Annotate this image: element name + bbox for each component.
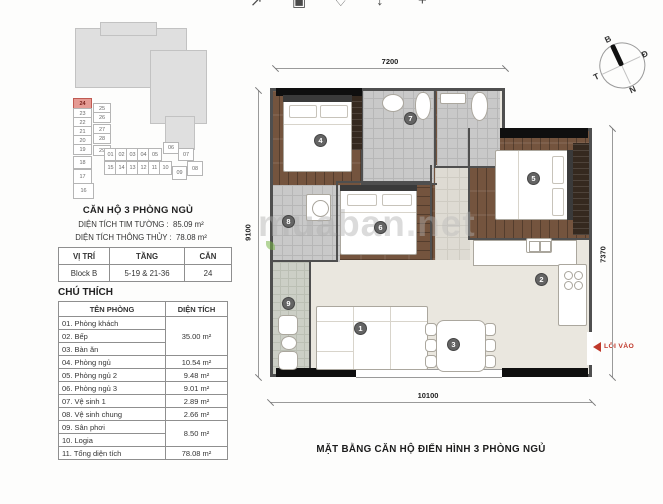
unit-cell[interactable]: 19 — [73, 144, 92, 155]
legend-room: 07. Vệ sinh 1 — [59, 395, 166, 408]
legend-room: 02. Bếp — [59, 330, 166, 343]
toilet-icon — [415, 92, 431, 120]
entry-arrow-icon — [593, 342, 601, 352]
plan-caption: MẶT BẰNG CĂN HỘ ĐIỂN HÌNH 3 PHÒNG NGỦ — [258, 444, 604, 455]
kitchen-counter-icon — [558, 264, 587, 326]
chair-icon — [278, 351, 298, 370]
floorplan-page: ↗ ▣ ♡ ↓ + 24 23 22 21 20 19 18 17 16 25 … — [0, 0, 663, 504]
sofa-icon — [316, 306, 428, 370]
col-floor: TẦNG — [110, 248, 185, 265]
unit-cell[interactable]: 10 — [159, 161, 172, 175]
unit-title: CĂN HỘ 3 PHÒNG NGỦ — [55, 205, 221, 216]
area-net-label: DIỆN TÍCH THÔNG THỦY : — [75, 233, 171, 242]
kitchen-sink-icon — [526, 238, 552, 253]
key-plan: 24 23 22 21 20 19 18 17 16 25 26 27 28 2… — [45, 20, 240, 202]
legend-room: 10. Logia — [59, 434, 166, 447]
wall-segment — [336, 181, 432, 183]
col-unit: CĂN — [185, 248, 232, 265]
unit-cell[interactable]: 06 — [163, 142, 179, 154]
compass-west: T — [592, 71, 601, 82]
building-mass — [150, 50, 207, 124]
legend-room: 09. Sân phơi — [59, 421, 166, 434]
area-net-value: 78.08 m² — [176, 233, 207, 242]
compass-north: B — [603, 33, 613, 45]
unit-cell[interactable]: 09 — [172, 166, 187, 180]
wall-segment — [270, 260, 338, 262]
share-icon[interactable]: ↗ — [250, 0, 263, 10]
marker-bathroom-1: 7 — [404, 112, 417, 125]
area-gross-value: 85.09 m² — [173, 220, 204, 229]
legend-area: 8.50 m² — [166, 421, 228, 447]
legend-title: CHÚ THÍCH — [58, 287, 113, 298]
building-mass — [100, 22, 157, 36]
legend-room: 01. Phòng khách — [59, 317, 166, 330]
legend-area: 78.08 m² — [166, 447, 228, 460]
toilet-icon — [471, 92, 488, 121]
kitchen-counter-icon — [473, 240, 577, 266]
wall-segment — [500, 128, 588, 138]
dimension-right: 7370 — [599, 240, 608, 270]
legend-room: 06. Phòng ngủ 3 — [59, 382, 166, 395]
download-icon[interactable]: ↓ — [376, 0, 384, 9]
wall-segment — [502, 368, 588, 377]
position-table: VỊ TRÍ TẦNG CĂN Block B 5-19 & 21-36 24 — [58, 247, 232, 282]
bed-icon — [495, 150, 573, 220]
legend-col-room: TÊN PHÒNG — [59, 302, 166, 317]
legend-area: 35.00 m² — [166, 317, 228, 356]
legend-area: 9.48 m² — [166, 369, 228, 382]
value-floor: 5-19 & 21-36 — [110, 265, 185, 282]
marker-kitchen: 2 — [535, 273, 548, 286]
marker-bedroom-2: 5 — [527, 172, 540, 185]
legend-area: 2.66 m² — [166, 408, 228, 421]
legend-room: 11. Tổng diện tích — [59, 447, 166, 460]
legend-table: TÊN PHÒNG DIỆN TÍCH 01. Phòng khách 35.0… — [58, 301, 228, 460]
dimension-line-bottom — [270, 402, 592, 403]
plus-icon[interactable]: + — [418, 0, 427, 9]
legend-area: 2.89 m² — [166, 395, 228, 408]
legend-room: 04. Phòng ngủ — [59, 356, 166, 369]
unit-cell[interactable]: 28 — [93, 133, 111, 144]
unit-cell[interactable]: 17 — [73, 169, 92, 184]
unit-cell[interactable]: 08 — [187, 161, 203, 176]
col-position: VỊ TRÍ — [59, 248, 110, 265]
compass: B Đ T N — [580, 24, 662, 106]
dimension-top: 7200 — [370, 57, 410, 66]
dining-table-icon — [436, 320, 486, 372]
marker-dining: 3 — [447, 338, 460, 351]
legend-col-area: DIỆN TÍCH — [166, 302, 228, 317]
marker-bedroom-3: 6 — [374, 221, 387, 234]
wall-segment — [434, 88, 436, 168]
marker-logia: 9 — [282, 297, 295, 310]
wardrobe-icon — [352, 96, 362, 150]
legend-room: 05. Phòng ngủ 2 — [59, 369, 166, 382]
legend-room: 08. Vệ sinh chung — [59, 408, 166, 421]
legend-area: 10.54 m² — [166, 356, 228, 369]
legend-room: 03. Bàn ăn — [59, 343, 166, 356]
unit-cell[interactable]: 05 — [148, 148, 162, 161]
dimension-line-top — [275, 68, 505, 69]
value-position: Block B — [59, 265, 110, 282]
table-icon — [281, 336, 297, 350]
wardrobe-icon — [573, 143, 589, 235]
wall-segment — [309, 262, 311, 376]
marker-utility: 8 — [282, 215, 295, 228]
unit-cell[interactable]: 07 — [178, 148, 194, 161]
unit-cell[interactable]: 26 — [93, 112, 111, 123]
chair-icon — [278, 315, 298, 335]
outside-area — [505, 88, 592, 128]
value-unit: 24 — [185, 265, 232, 282]
compass-south: N — [628, 84, 638, 96]
area-net-line: DIỆN TÍCH THÔNG THỦY : 78.08 m² — [55, 233, 227, 242]
marker-bedroom-1: 4 — [314, 134, 327, 147]
dimension-left: 9100 — [244, 218, 253, 248]
sink-icon — [382, 94, 404, 112]
dimension-bottom: 10100 — [405, 391, 451, 400]
save-icon[interactable]: ▣ — [292, 0, 306, 10]
dimension-line-right — [612, 128, 613, 377]
marker-living-room: 1 — [354, 322, 367, 335]
area-gross-label: DIỆN TÍCH TIM TƯỜNG : — [78, 220, 168, 229]
legend-area: 9.01 m² — [166, 382, 228, 395]
area-gross-line: DIỆN TÍCH TIM TƯỜNG : 85.09 m² — [55, 220, 227, 229]
sink-icon — [440, 93, 466, 104]
entry-label: LỐI VÀO — [604, 343, 634, 350]
unit-cell[interactable]: 18 — [73, 156, 92, 169]
unit-cell[interactable]: 16 — [73, 183, 94, 199]
heart-icon[interactable]: ♡ — [334, 0, 347, 10]
